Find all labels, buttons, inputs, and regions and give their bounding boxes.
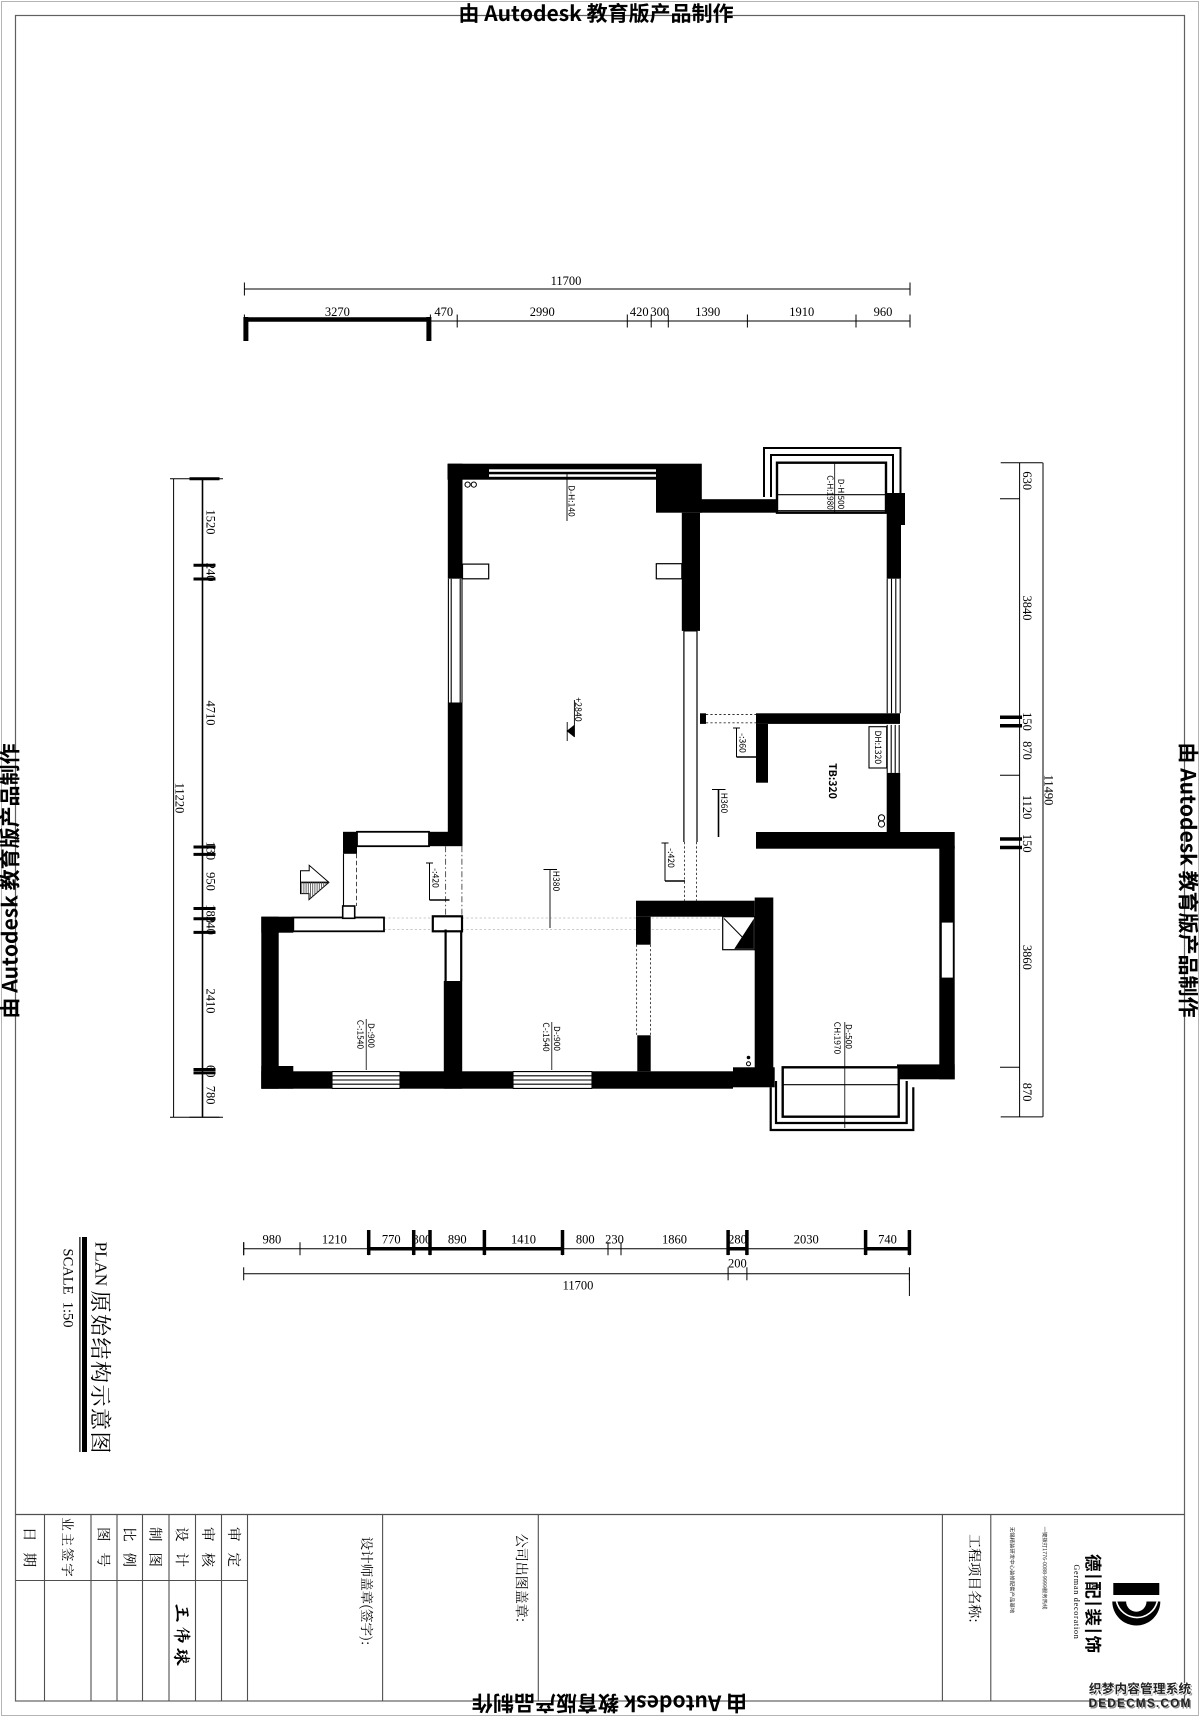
svg-text:1210: 1210 xyxy=(322,1233,347,1247)
svg-text:3270: 3270 xyxy=(325,305,350,319)
svg-text:960: 960 xyxy=(874,305,893,319)
svg-text:150: 150 xyxy=(1020,834,1034,853)
svg-text:11220: 11220 xyxy=(172,783,186,814)
svg-text:980: 980 xyxy=(263,1233,282,1247)
svg-text:2990: 2990 xyxy=(530,305,555,319)
svg-text:1860: 1860 xyxy=(662,1233,687,1247)
svg-text:130: 130 xyxy=(204,841,218,860)
svg-text:2410: 2410 xyxy=(204,989,218,1014)
svg-text:870: 870 xyxy=(1020,1083,1034,1102)
svg-text:1120: 1120 xyxy=(1020,795,1034,820)
svg-text:300: 300 xyxy=(650,305,669,319)
svg-text:1910: 1910 xyxy=(789,305,814,319)
svg-text:11700: 11700 xyxy=(563,1279,594,1293)
svg-text:2030: 2030 xyxy=(794,1233,819,1247)
svg-text:420: 420 xyxy=(630,305,649,319)
svg-text:PLAN: PLAN xyxy=(92,1242,111,1286)
svg-text:200: 200 xyxy=(728,1257,747,1271)
svg-text:630: 630 xyxy=(1020,471,1034,490)
svg-text:German decoration: German decoration xyxy=(1072,1564,1081,1639)
svg-text:740: 740 xyxy=(878,1233,897,1247)
svg-text:4710: 4710 xyxy=(204,701,218,726)
svg-text:DEDECMS.COM: DEDECMS.COM xyxy=(1089,1696,1192,1710)
svg-text:1390: 1390 xyxy=(695,305,720,319)
svg-text:870: 870 xyxy=(1020,741,1034,760)
svg-text:150: 150 xyxy=(1020,712,1034,731)
svg-text:280: 280 xyxy=(728,1233,747,1247)
svg-text:11700: 11700 xyxy=(551,274,582,288)
svg-text:780: 780 xyxy=(204,1086,218,1105)
svg-text:470: 470 xyxy=(434,305,453,319)
svg-text:SCALE 1:50: SCALE 1:50 xyxy=(60,1249,76,1328)
svg-text:60: 60 xyxy=(204,1065,218,1078)
svg-text:800: 800 xyxy=(576,1233,595,1247)
svg-text:3860: 3860 xyxy=(1020,945,1034,970)
svg-text:950: 950 xyxy=(204,872,218,891)
svg-text:1520: 1520 xyxy=(204,510,218,535)
svg-text:1410: 1410 xyxy=(511,1233,536,1247)
svg-text:770: 770 xyxy=(382,1233,401,1247)
svg-text:11490: 11490 xyxy=(1042,775,1056,806)
svg-text:3840: 3840 xyxy=(1020,596,1034,621)
svg-text:890: 890 xyxy=(448,1233,467,1247)
